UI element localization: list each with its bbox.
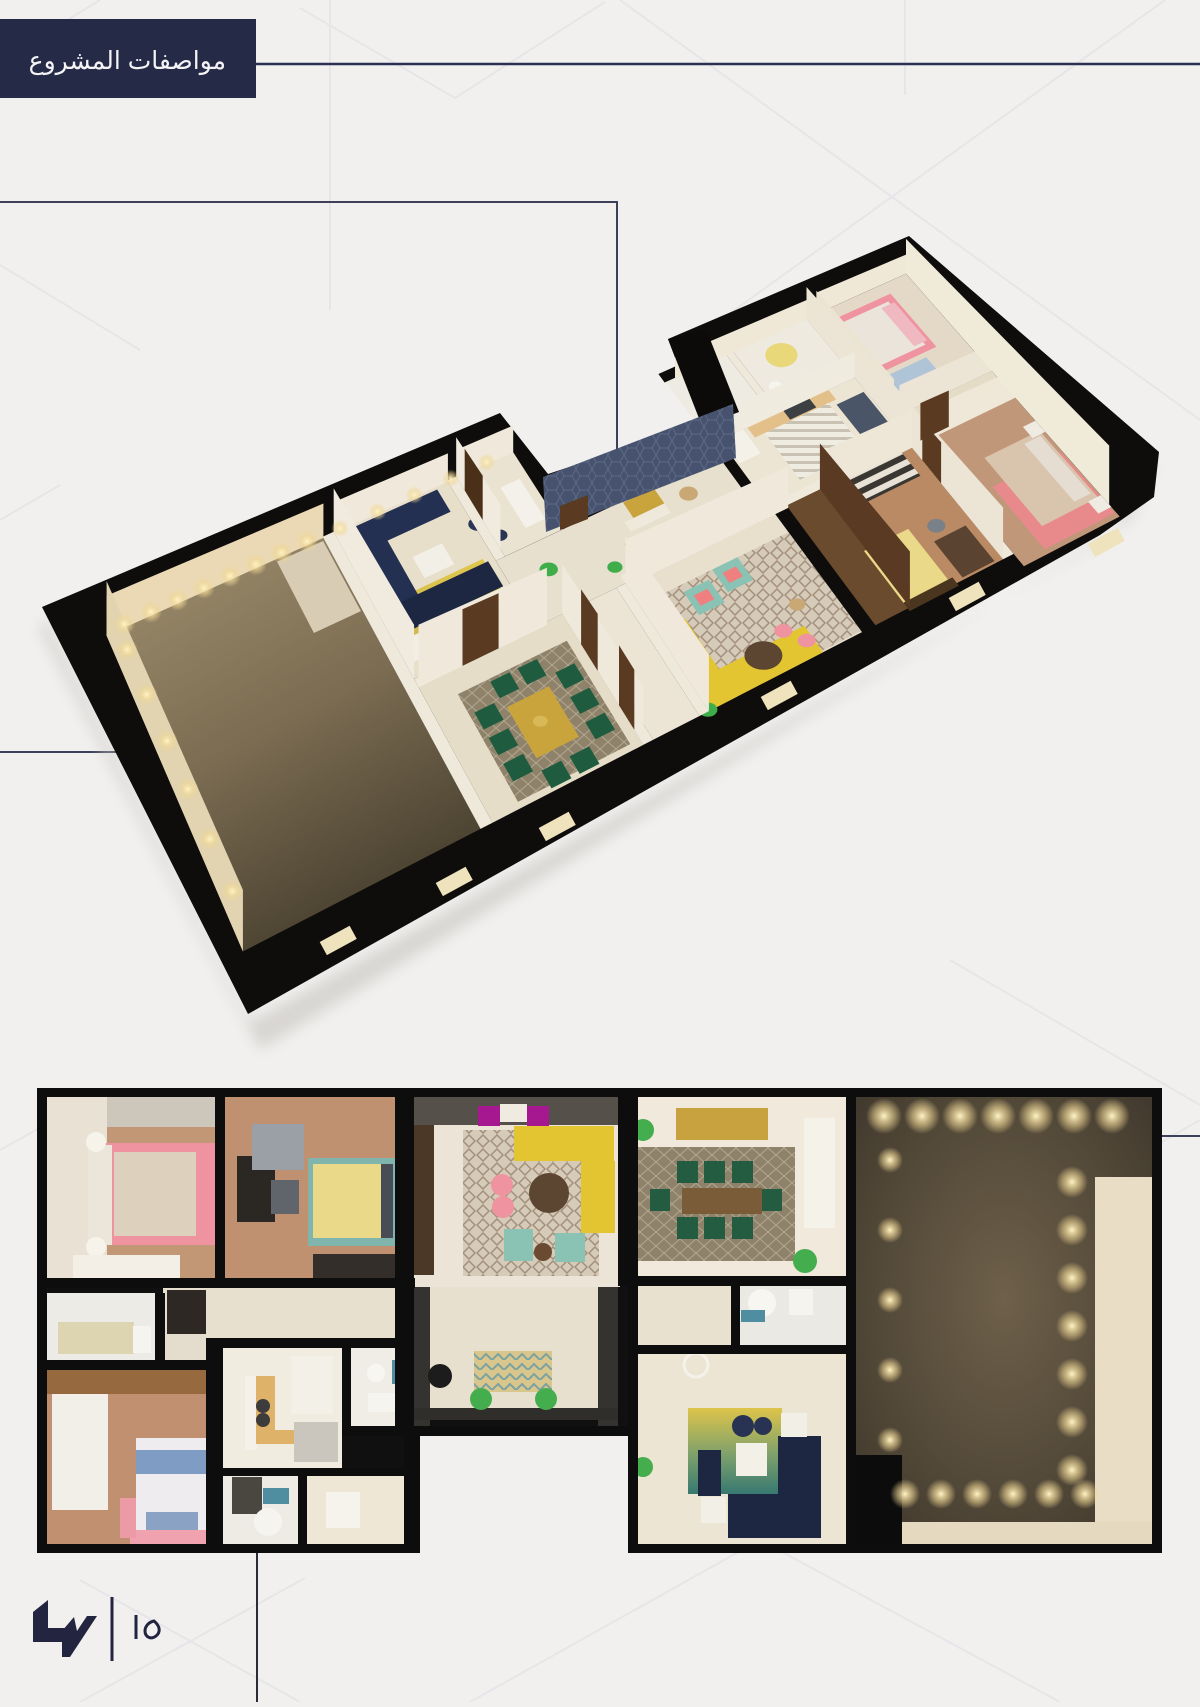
svg-text:مواصفات المشروع: مواصفات المشروع [29, 47, 226, 76]
